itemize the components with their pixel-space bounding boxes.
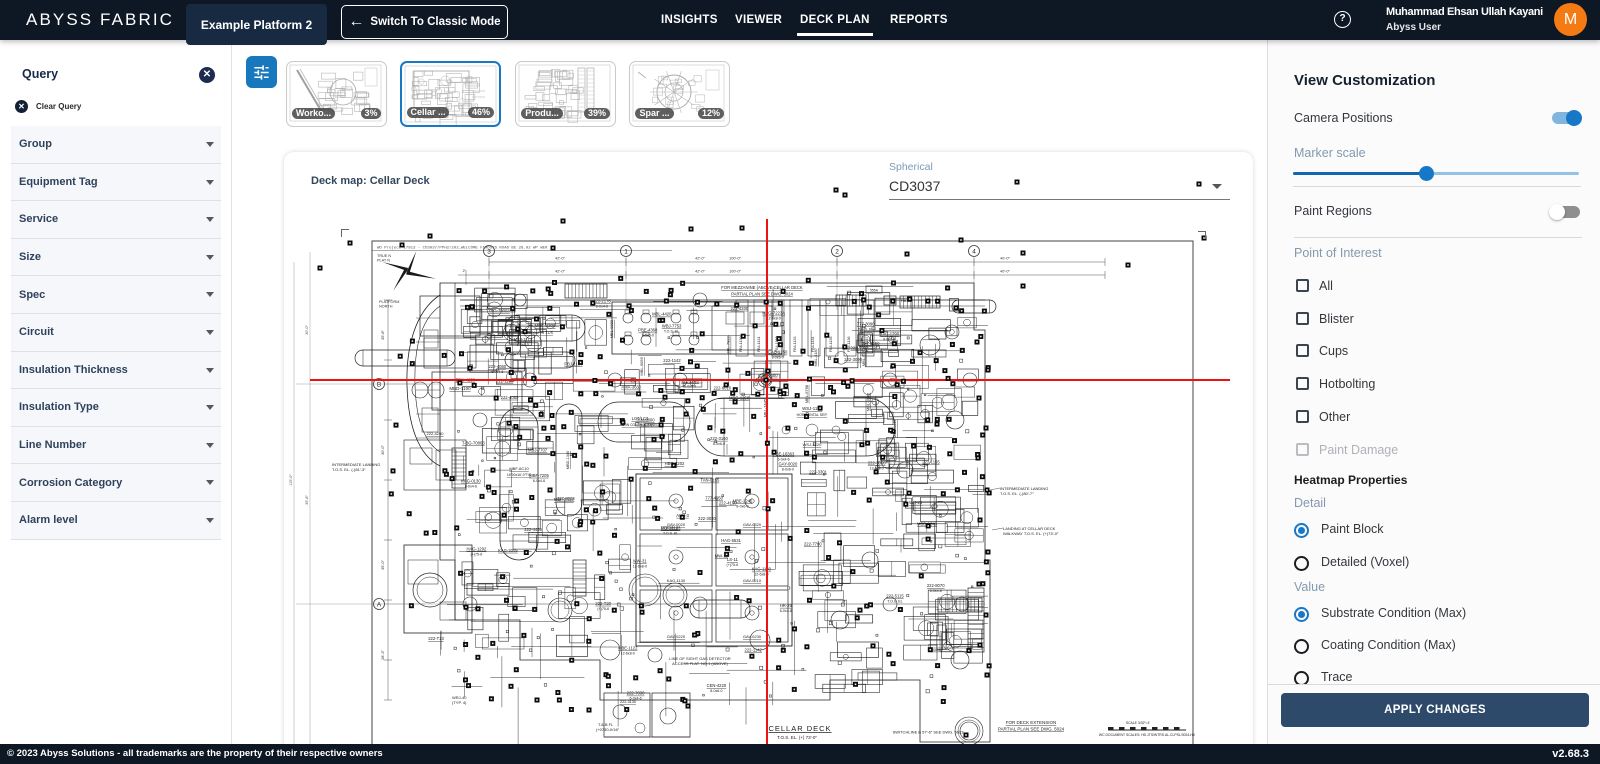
svg-text:T.O.S. EL. (-)81′-3″: T.O.S. EL. (-)81′-3″ xyxy=(332,467,366,472)
svg-text:222-1142: 222-1142 xyxy=(663,358,681,363)
svg-text:2: 2 xyxy=(835,249,839,256)
svg-text:42′-0″: 42′-0″ xyxy=(555,257,565,261)
svg-text:T.O.S. EL: T.O.S. EL xyxy=(664,330,679,334)
svg-text:GAV-0210: GAV-0210 xyxy=(743,578,762,583)
svg-text:WC DOCUMENT SCALES: HD.JTS/WTR: WC DOCUMENT SCALES: HD.JTS/WTRS.AL.CLPSL… xyxy=(1099,733,1196,737)
svg-text:8-0x6-0: 8-0x6-0 xyxy=(710,689,722,693)
svg-text:4: 4 xyxy=(972,249,976,256)
svg-text:3: 3 xyxy=(487,249,491,256)
svg-text:MBL-5241: MBL-5241 xyxy=(859,325,864,344)
svg-text:8-0x6-0: 8-0x6-0 xyxy=(736,504,748,508)
svg-text:8-0x6-0: 8-0x6-0 xyxy=(713,442,725,446)
svg-text:SWITCHLINE B 57′-6″ SEE DWG. 5: SWITCHLINE B 57′-6″ SEE DWG. 5023 xyxy=(893,730,965,735)
svg-text:100′-0″: 100′-0″ xyxy=(729,257,741,261)
svg-text:GAV-0220: GAV-0220 xyxy=(667,634,686,639)
svg-text:222-4050: 222-4050 xyxy=(501,395,519,400)
svg-text:MW-31: MW-31 xyxy=(633,558,647,563)
svg-text:222-6010: 222-6010 xyxy=(713,385,731,390)
svg-text:MBL-9822: MBL-9822 xyxy=(609,319,614,338)
svg-text:8-0x6-0: 8-0x6-0 xyxy=(642,334,654,338)
svg-text:8-0x6-0: 8-0x6-0 xyxy=(772,356,784,360)
svg-text:(+)75-6: (+)75-6 xyxy=(471,553,483,557)
svg-text:222-3301: 222-3301 xyxy=(809,469,827,474)
svg-text:MBE-2240: MBE-2240 xyxy=(733,498,753,503)
svg-text:HAG-1292: HAG-1292 xyxy=(467,547,487,552)
svg-text:NORTH: NORTH xyxy=(379,305,393,309)
svg-text:30′-0″: 30′-0″ xyxy=(305,325,309,335)
svg-text:MBF-8123: MBF-8123 xyxy=(661,526,681,531)
svg-text:555A: 555A xyxy=(870,289,879,293)
svg-text:B: B xyxy=(377,382,381,389)
svg-text:TRUE N: TRUE N xyxy=(377,254,391,258)
svg-text:28′-3″: 28′-3″ xyxy=(381,650,385,660)
svg-text:30′-0″: 30′-0″ xyxy=(381,445,385,455)
svg-text:222-3160: 222-3160 xyxy=(710,436,728,441)
svg-text:222-4060: 222-4060 xyxy=(488,364,506,369)
svg-text:T.O.S. EL. (+) 73′-0″: T.O.S. EL. (+) 73′-0″ xyxy=(777,735,817,740)
svg-text:MBL-4420: MBL-4420 xyxy=(652,312,672,317)
svg-text:FB4-1130: FB4-1130 xyxy=(739,336,743,352)
svg-text:35′-8″: 35′-8″ xyxy=(381,330,385,340)
svg-text:(+0730-0/16″: (+0730-0/16″ xyxy=(596,727,620,732)
svg-text:KAG-1130: KAG-1130 xyxy=(752,567,772,572)
svg-text:WR-23: WR-23 xyxy=(909,500,923,505)
svg-text:42′-0″: 42′-0″ xyxy=(555,270,565,274)
svg-text:LS-11: LS-11 xyxy=(727,557,739,562)
svg-text:MBL-7922: MBL-7922 xyxy=(726,335,731,354)
svg-text:MSJ-1113: MSJ-1113 xyxy=(513,337,532,342)
svg-text:FOR DECK EXTENSION: FOR DECK EXTENSION xyxy=(1006,720,1057,725)
svg-text:100′-0″: 100′-0″ xyxy=(729,270,741,274)
svg-text:2′: 2′ xyxy=(463,269,466,273)
svg-text:6-0x4-6: 6-0x4-6 xyxy=(930,589,942,593)
svg-text:WSJ-3120: WSJ-3120 xyxy=(803,442,822,447)
svg-text:222-2178: 222-2178 xyxy=(593,299,611,304)
svg-text:MBD-1340: MBD-1340 xyxy=(566,451,570,469)
svg-text:1: 1 xyxy=(624,249,628,256)
svg-text:AMA-3630: AMA-3630 xyxy=(621,385,641,390)
svg-text:42′-0″: 42′-0″ xyxy=(695,257,705,261)
svg-text:6-0x4-6: 6-0x4-6 xyxy=(780,609,792,613)
svg-text:6-0x4-6: 6-0x4-6 xyxy=(684,385,696,389)
svg-text:35′-8″: 35′-8″ xyxy=(305,495,309,505)
svg-text:(+)75-6: (+)75-6 xyxy=(597,607,609,611)
svg-text:GAV-0230: GAV-0230 xyxy=(743,634,762,639)
svg-text:222-3090: 222-3090 xyxy=(844,357,862,362)
svg-text:A: A xyxy=(377,602,382,609)
svg-text:FB4-1135: FB4-1135 xyxy=(829,336,833,352)
svg-text:222-4200: 222-4200 xyxy=(731,306,749,311)
svg-text:GAY-0020: GAY-0020 xyxy=(778,461,798,466)
svg-text:PLATFORM: PLATFORM xyxy=(379,300,399,304)
svg-text:222-T13: 222-T13 xyxy=(428,636,444,641)
svg-text:MBL-9059: MBL-9059 xyxy=(639,356,644,375)
svg-text:16″00x16′-0″T/S: 16″00x16′-0″T/S xyxy=(507,473,532,477)
svg-text:777-3090: 777-3090 xyxy=(857,322,875,327)
svg-text:222-8070: 222-8070 xyxy=(927,583,945,588)
svg-text:6-0x4-6: 6-0x4-6 xyxy=(533,479,545,483)
svg-text:TBG-70003: TBG-70003 xyxy=(488,308,510,313)
svg-text:MBL-6467: MBL-6467 xyxy=(861,347,866,366)
svg-text:777-8003: 777-8003 xyxy=(557,496,575,501)
svg-text:222-7790: 222-7790 xyxy=(804,541,822,546)
svg-text:TAN-0155: TAN-0155 xyxy=(701,478,720,483)
svg-text:CAB-7600: CAB-7600 xyxy=(758,373,778,378)
svg-text:8-0x6-0: 8-0x6-0 xyxy=(883,337,895,341)
svg-text:222-5115: 222-5115 xyxy=(886,594,904,599)
svg-text:115′-0″: 115′-0″ xyxy=(289,474,293,486)
svg-text:HAG-5531: HAG-5531 xyxy=(721,538,741,543)
svg-text:MBF-6C10: MBF-6C10 xyxy=(509,466,529,471)
svg-text:PLAT N: PLAT N xyxy=(377,259,390,263)
svg-text:FB4-1133: FB4-1133 xyxy=(793,336,797,352)
svg-text:FB4-1131: FB4-1131 xyxy=(757,336,761,352)
svg-text:40′-0″: 40′-0″ xyxy=(1000,257,1010,261)
svg-text:222-3130: 222-3130 xyxy=(620,700,636,704)
svg-text:T.O.S. EL. (-)80′-7″: T.O.S. EL. (-)80′-7″ xyxy=(1000,491,1034,496)
svg-text:TAN-9600: TAN-9600 xyxy=(636,418,655,423)
svg-text:GAV-0320: GAV-0320 xyxy=(743,522,762,527)
svg-text:42′-0″: 42′-0″ xyxy=(695,270,705,274)
svg-text:MBE-1122: MBE-1122 xyxy=(618,645,638,650)
svg-text:35′-0″: 35′-0″ xyxy=(381,560,385,570)
svg-text:SCALE 3/32″=1′: SCALE 3/32″=1′ xyxy=(1126,721,1151,725)
svg-text:12-6x8-0: 12-6x8-0 xyxy=(633,564,647,568)
svg-text:HAG-7223A: HAG-7223A xyxy=(762,311,785,316)
svg-text:PARTIAL PLAN SEE DWG. 5024: PARTIAL PLAN SEE DWG. 5024 xyxy=(998,727,1065,732)
svg-text:WALKWAY T.O.S. EL. (+)73′-0″: WALKWAY T.O.S. EL. (+)73′-0″ xyxy=(1003,531,1059,536)
svg-text:40′-0″: 40′-0″ xyxy=(1000,270,1010,274)
svg-text:T.O.S. EL: T.O.S. EL xyxy=(887,600,902,604)
svg-text:(TYP. 4): (TYP. 4) xyxy=(452,700,467,705)
svg-text:HORIZONTAL SEP.: HORIZONTAL SEP. xyxy=(797,413,828,417)
svg-text:FOR MEZZANINE (ABOVE CELLAR DE: FOR MEZZANINE (ABOVE CELLAR DECK xyxy=(721,285,803,290)
svg-text:CELLAR DECK: CELLAR DECK xyxy=(768,724,831,733)
svg-text:8-0x6-0: 8-0x6-0 xyxy=(517,343,529,347)
svg-text:T.O.S. EL: T.O.S. EL xyxy=(663,532,678,536)
svg-text:PBE-4368: PBE-4368 xyxy=(638,328,658,333)
svg-text:222-4456: 222-4456 xyxy=(524,527,542,532)
svg-text:MBL-3882: MBL-3882 xyxy=(865,392,870,411)
svg-text:222-T20: 222-T20 xyxy=(595,601,611,606)
svg-text:12-6x8-0: 12-6x8-0 xyxy=(621,651,635,655)
svg-text:KAG-1130: KAG-1130 xyxy=(667,578,686,583)
svg-text:222-3050: 222-3050 xyxy=(868,460,886,465)
svg-text:T-BG-70003: T-BG-70003 xyxy=(462,440,485,445)
svg-text:6-0x4-6: 6-0x4-6 xyxy=(465,485,477,489)
svg-text:222-4250: 222-4250 xyxy=(427,431,445,436)
svg-text:MBG-1250: MBG-1250 xyxy=(729,395,750,400)
svg-text:6-0x4-6: 6-0x4-6 xyxy=(596,305,608,309)
svg-text:(+)75-6: (+)75-6 xyxy=(727,563,739,567)
svg-text:6-0x4-6: 6-0x4-6 xyxy=(491,370,503,374)
svg-text:8-0x6-0: 8-0x6-0 xyxy=(782,467,794,471)
svg-text:HR-29: HR-29 xyxy=(780,603,793,608)
svg-text:CEN-4220: CEN-4220 xyxy=(707,683,727,688)
svg-text:KAG-0130: KAG-0130 xyxy=(461,479,481,484)
svg-text:MBL-6768: MBL-6768 xyxy=(804,384,809,403)
svg-text:MBF-7205: MBF-7205 xyxy=(529,473,549,478)
svg-text:12-6x8-0: 12-6x8-0 xyxy=(638,424,652,428)
svg-text:222-1142: 222-1142 xyxy=(745,648,763,653)
svg-text:12-6x8-0: 12-6x8-0 xyxy=(767,317,781,321)
svg-text:222-1155: 222-1155 xyxy=(922,460,940,465)
svg-text:222-3030: 222-3030 xyxy=(698,516,716,521)
svg-text:WBJ-7753: WBJ-7753 xyxy=(662,324,682,329)
svg-text:CAB-9150: CAB-9150 xyxy=(768,350,788,355)
